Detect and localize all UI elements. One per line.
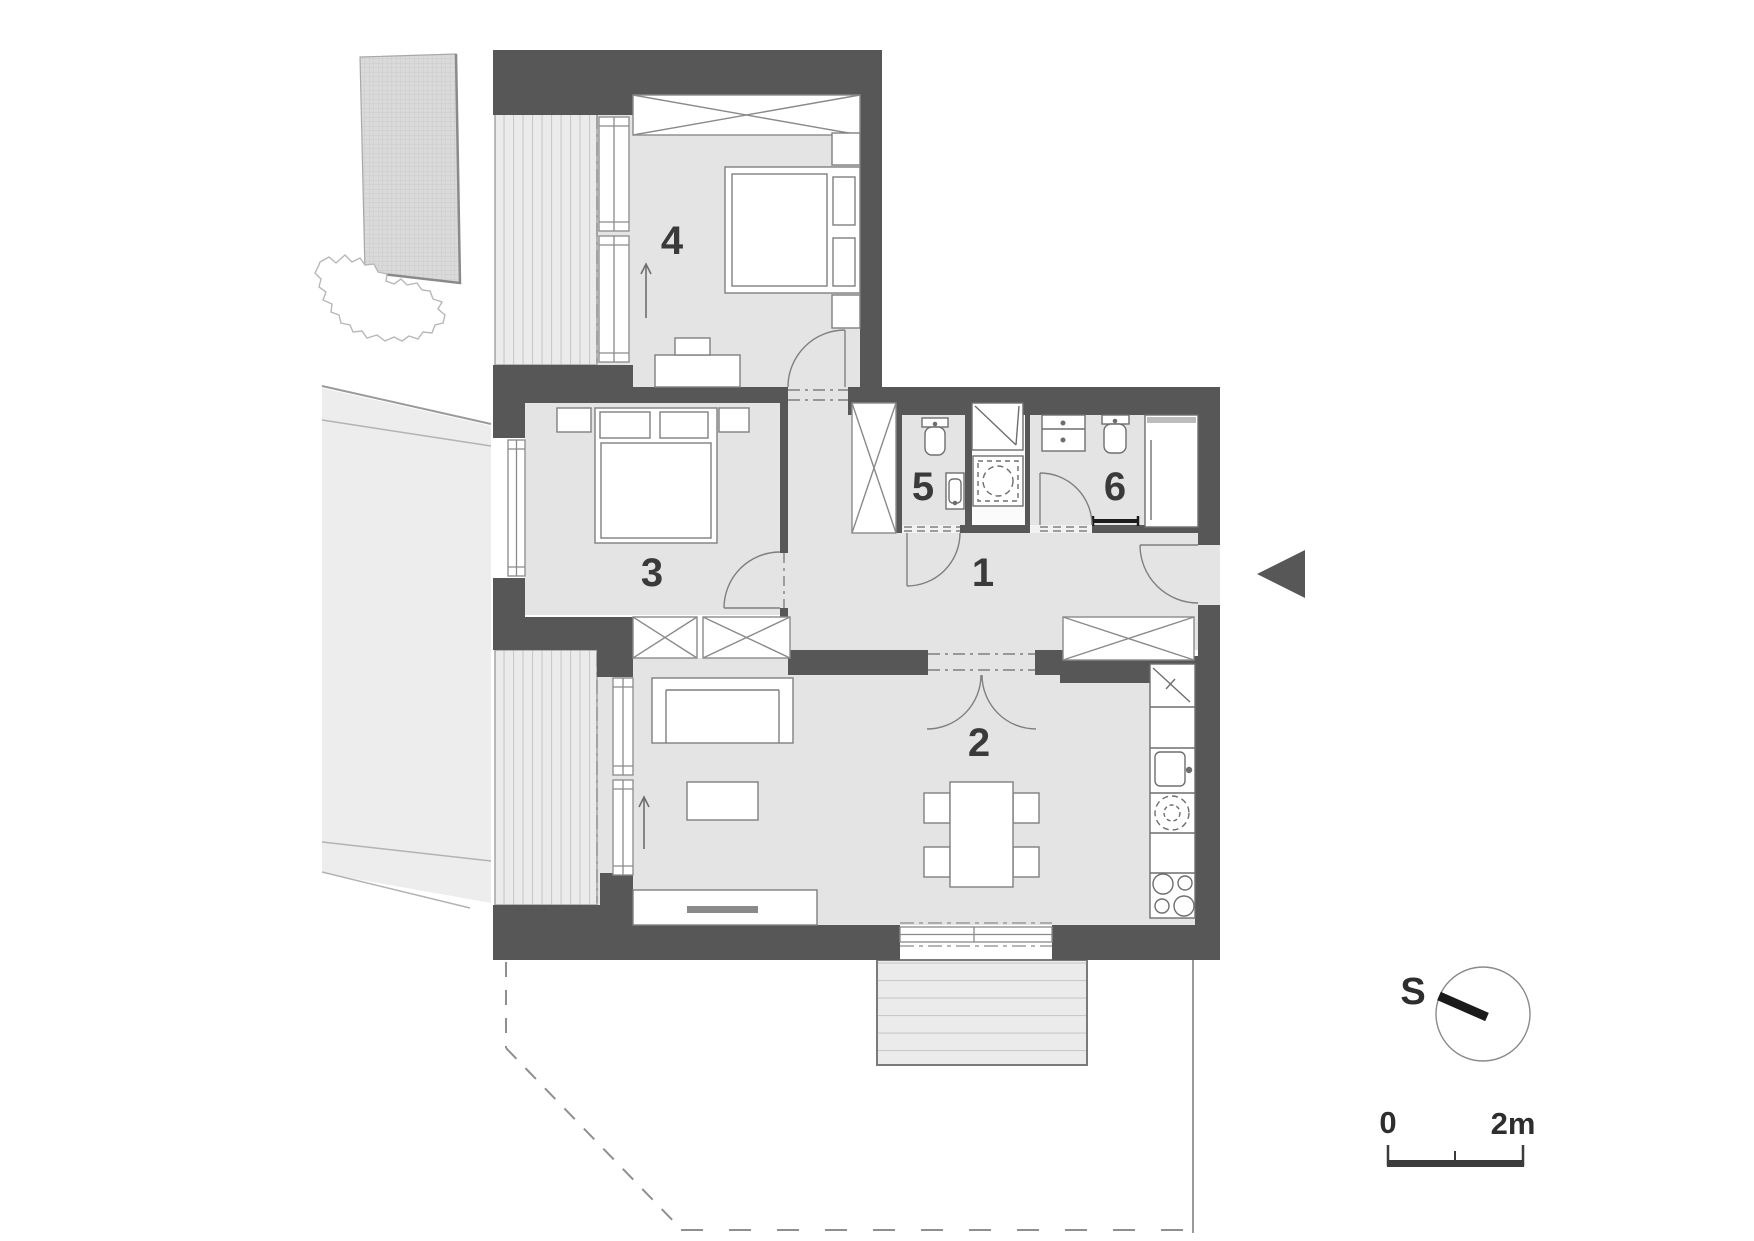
- sofa-room-2: [652, 678, 793, 743]
- wardrobe-room-4: [633, 95, 860, 135]
- entry-arrow-marker: [1257, 550, 1305, 598]
- terrace: [877, 960, 1087, 1065]
- washing-machine-closet: [973, 456, 1023, 506]
- adjacent-building-hatched: [360, 54, 460, 283]
- scale-bar: 0 2m: [1379, 1105, 1535, 1166]
- nightstand-room-3-left: [557, 408, 591, 432]
- compass-south-label: S: [1400, 971, 1425, 1013]
- sliding-door-terrace: [900, 923, 1052, 946]
- coffee-table-room-2: [687, 782, 758, 820]
- compass: S: [1400, 967, 1530, 1061]
- wardrobe-room-2-right: [1063, 617, 1194, 660]
- room-label-4: 4: [661, 219, 684, 263]
- balcony-upper: [495, 112, 597, 365]
- window-room-2-b: [613, 780, 633, 875]
- sink-room-5: [946, 473, 964, 509]
- window-room-4-b: [599, 236, 629, 362]
- room-label-5: 5: [912, 465, 934, 509]
- room-label-1: 1: [972, 551, 994, 595]
- nightstand-room-3-right: [719, 408, 749, 432]
- balcony-lower: [495, 650, 597, 905]
- scale-max-label: 2m: [1491, 1106, 1536, 1141]
- window-room-2-a: [613, 678, 633, 775]
- property-boundary: [506, 960, 1193, 1233]
- room-label-3: 3: [641, 551, 663, 595]
- tv-sideboard-room-2: [633, 890, 817, 925]
- outdoor-ground: [322, 386, 491, 908]
- toilet-room-5: [922, 418, 948, 455]
- scale-zero-label: 0: [1379, 1105, 1396, 1140]
- bed-room-3: [595, 408, 717, 543]
- compass-needle: [1439, 996, 1487, 1017]
- floor-plan-drawing: 4 3 5 6 1 2 S 0 2m: [0, 0, 1754, 1241]
- room-label-6: 6: [1104, 465, 1126, 509]
- window-room-4-a: [599, 117, 629, 231]
- window-room-3: [508, 440, 525, 576]
- room-label-2: 2: [968, 721, 990, 765]
- wardrobe-room-2-left-b: [703, 617, 790, 658]
- floor-plan-page: 4 3 5 6 1 2 S 0 2m: [0, 0, 1754, 1241]
- hallway-upper-leg-floor: [788, 403, 852, 533]
- entry-threshold-floor: [1198, 545, 1220, 605]
- wardrobe-hallway-tall: [852, 403, 896, 533]
- bed-room-4: [725, 167, 860, 293]
- wardrobe-room-2-left-a: [633, 617, 697, 658]
- vanity-sink-room-6: [1042, 415, 1085, 451]
- nightstand-room-4-top: [832, 133, 860, 165]
- nightstand-room-4-bottom: [832, 295, 860, 328]
- water-heater-closet: [972, 403, 1023, 450]
- toilet-room-6: [1102, 415, 1129, 453]
- kitchen-row: [1150, 664, 1195, 918]
- shower-room-6: [1145, 415, 1198, 527]
